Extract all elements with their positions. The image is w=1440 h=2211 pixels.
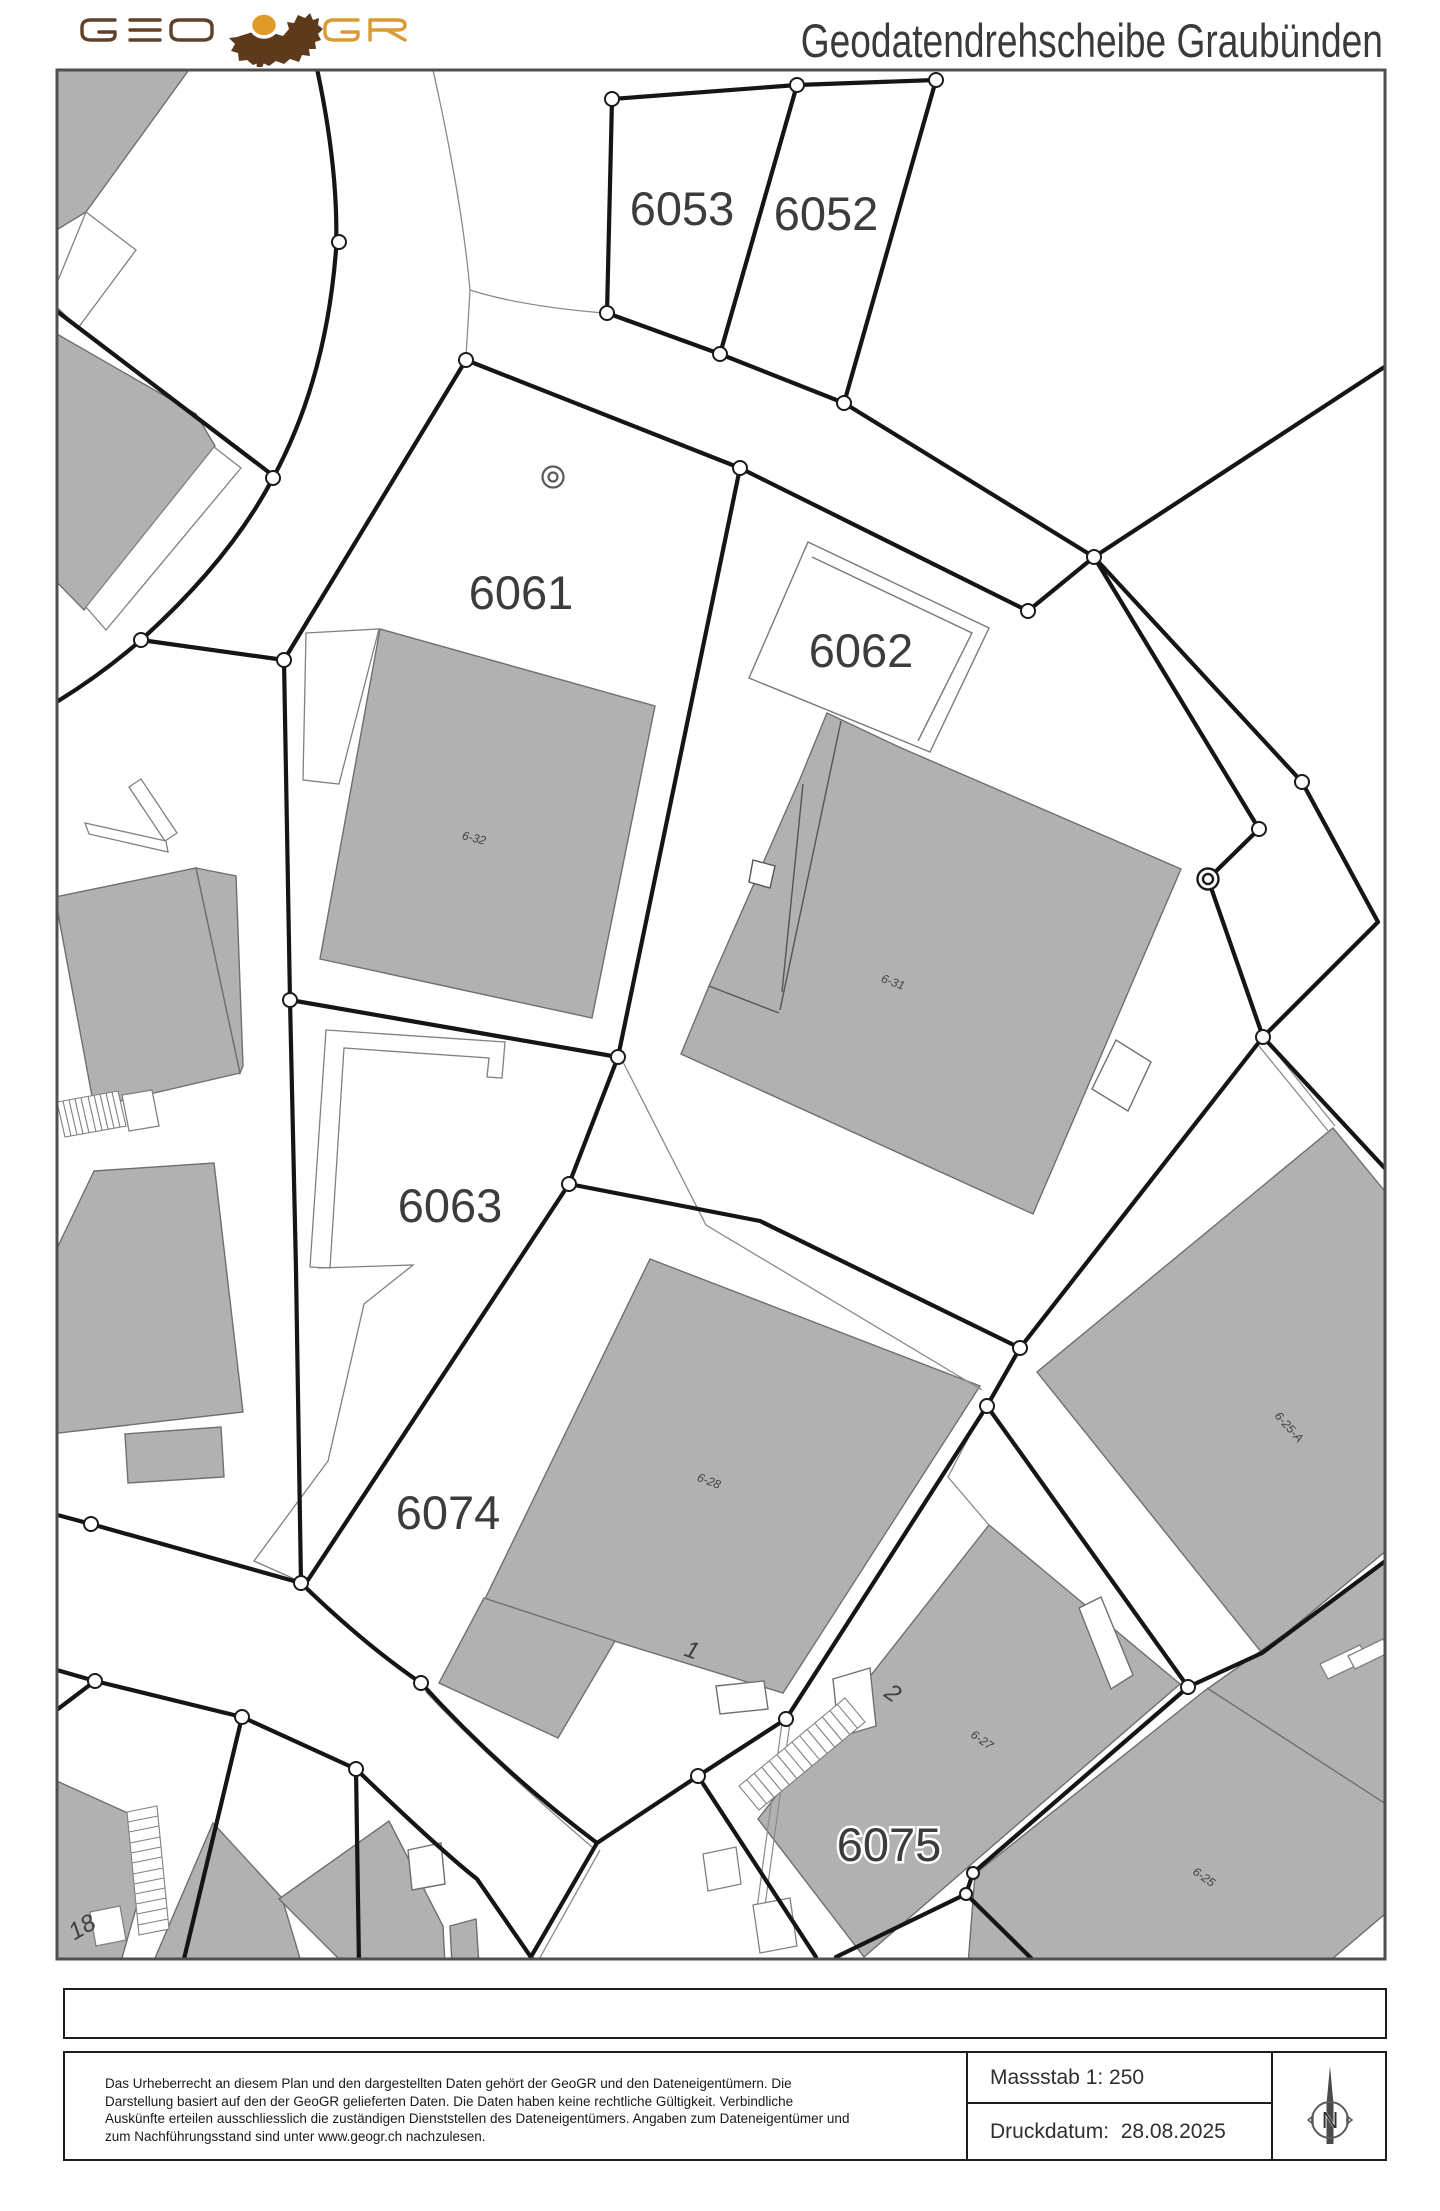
svg-text:6074: 6074 [396,1486,501,1539]
svg-text:6062: 6062 [809,624,914,677]
svg-text:6075: 6075 [837,1818,942,1871]
svg-text:6063: 6063 [398,1179,503,1232]
svg-text:6061: 6061 [469,566,574,619]
svg-text:6053: 6053 [630,182,735,235]
svg-text:6052: 6052 [774,187,879,240]
svg-text:N: N [1322,2107,1339,2133]
